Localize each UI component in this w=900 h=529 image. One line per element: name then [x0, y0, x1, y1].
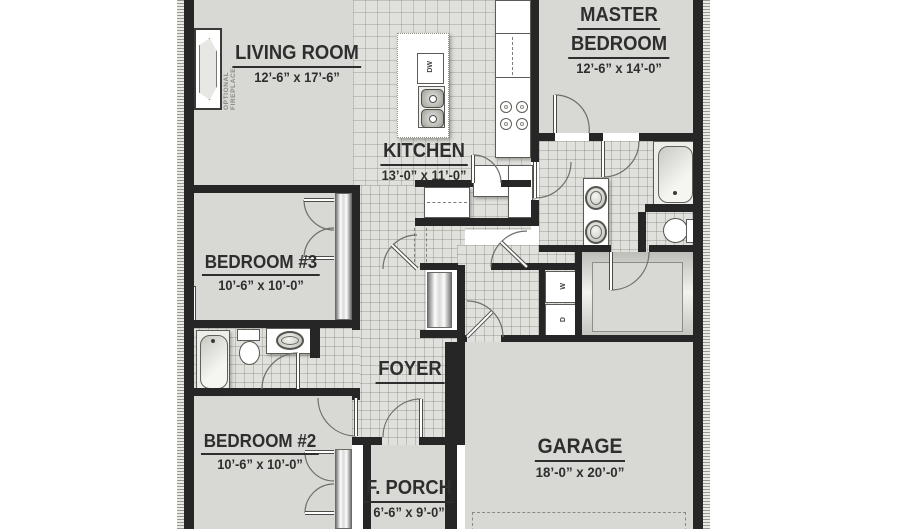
room-label-bedroom-2: BEDROOM #2 10’-6” x 10’-0” — [196, 430, 324, 472]
room-label-garage: GARAGE 18’-0” x 20’-0” — [531, 435, 629, 480]
garage-name: GARAGE — [535, 435, 625, 462]
door-swing-arc — [262, 353, 298, 389]
master-name-line2: BEDROOM — [568, 33, 670, 59]
kitchen-name: KITCHEN — [380, 140, 467, 166]
door-swing-arc — [611, 252, 649, 290]
kitchen-dims: 13’-0” x 11’-0” — [379, 168, 469, 183]
door-swing-arc — [304, 200, 334, 230]
room-label-living-room: LIVING ROOM 12’-6” x 17’-6” — [227, 42, 367, 85]
porch-name: F. PORCH — [363, 477, 454, 503]
door-swing-arc — [383, 399, 421, 437]
room-label-bedroom-3: BEDROOM #3 10’-6” x 10’-0” — [197, 251, 325, 293]
garage-dims: 18’-0” x 20’-0” — [533, 464, 626, 480]
bedroom-2-name: BEDROOM #2 — [201, 430, 319, 455]
floor-plan: DW W D — [0, 0, 900, 529]
door-swing-arc — [473, 155, 501, 183]
door-leaf-face — [467, 312, 492, 337]
room-label-master-bedroom: MASTER BEDROOM 12’-6” x 14’-0” — [564, 4, 674, 76]
room-label-kitchen: KITCHEN 13’-0” x 11’-0” — [377, 140, 472, 183]
door-swing-arc — [305, 484, 334, 513]
room-label-foyer: FOYER — [373, 358, 448, 384]
living-room-name: LIVING ROOM — [232, 42, 361, 68]
foyer-name: FOYER — [376, 358, 445, 384]
door-leaf-face — [501, 242, 527, 267]
door-swing-arc — [555, 95, 589, 133]
bedroom-2-dims: 10’-6” x 10’-0” — [199, 457, 321, 472]
living-room-dims: 12’-6” x 17’-6” — [230, 70, 363, 85]
master-dims: 12’-6” x 14’-0” — [567, 61, 672, 76]
bedroom-3-dims: 10’-6” x 10’-0” — [200, 278, 322, 293]
porch-dims: 6’-6” x 9’-0” — [362, 505, 456, 520]
room-label-front-porch: F. PORCH 6’-6” x 9’-0” — [359, 477, 458, 520]
door-swing-arc — [603, 141, 639, 177]
door-swings-layer — [0, 0, 900, 529]
master-name-line1: MASTER — [577, 4, 660, 30]
door-swing-arc — [535, 162, 571, 198]
bedroom-3-name: BEDROOM #3 — [202, 251, 320, 276]
door-leaf-face — [392, 245, 417, 269]
